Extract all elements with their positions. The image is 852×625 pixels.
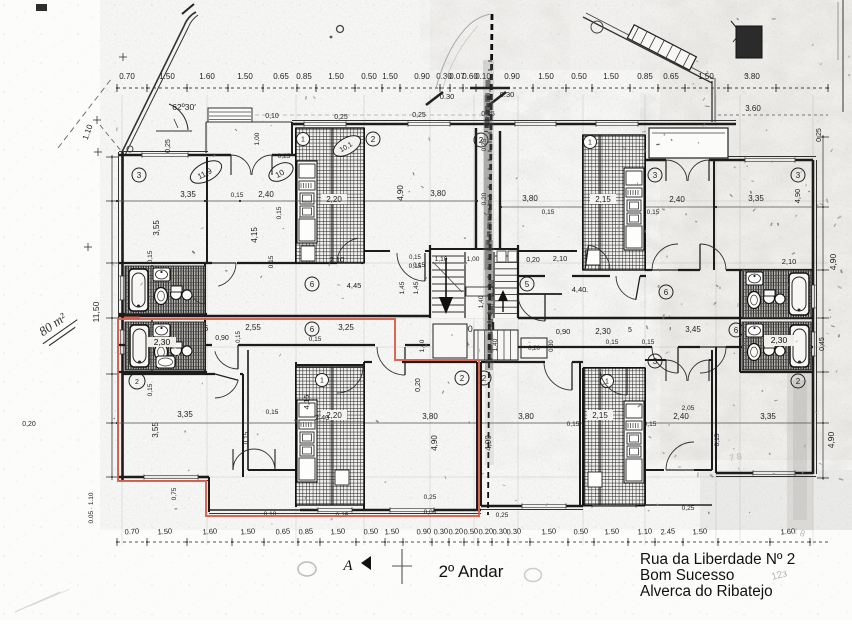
svg-text:2,30: 2,30 (771, 335, 788, 345)
svg-text:0,30: 0,30 (549, 340, 555, 352)
svg-text:0,20: 0,20 (22, 421, 36, 428)
svg-text:0,20: 0,20 (415, 378, 422, 392)
svg-text:1,45: 1,45 (399, 281, 406, 294)
svg-text:1.50: 1.50 (692, 527, 707, 537)
svg-text:1: 1 (320, 378, 324, 385)
svg-text:1.50: 1.50 (382, 72, 398, 81)
svg-text:3,80: 3,80 (522, 194, 538, 203)
svg-text:2º Andar: 2º Andar (439, 562, 504, 581)
svg-text:1.10: 1.10 (637, 527, 652, 537)
svg-text:0,25: 0,25 (682, 505, 695, 512)
svg-text:7 8: 7 8 (728, 451, 742, 463)
svg-text:0,20: 0,20 (526, 257, 540, 264)
svg-text:1.50: 1.50 (159, 72, 175, 81)
svg-text:0.85: 0.85 (296, 72, 312, 81)
svg-text:1.50: 1.50 (384, 527, 399, 537)
svg-text:4,40: 4,40 (572, 285, 587, 294)
svg-text:0.65: 0.65 (273, 72, 289, 81)
svg-text:1.50: 1.50 (604, 527, 619, 537)
svg-text:3,35: 3,35 (760, 412, 776, 421)
svg-text:2,55: 2,55 (245, 323, 261, 332)
svg-text:2,10: 2,10 (782, 257, 797, 266)
svg-text:1.50: 1.50 (328, 72, 344, 81)
svg-text:0,25: 0,25 (816, 128, 823, 142)
svg-text:0.30: 0.30 (500, 90, 515, 99)
svg-text:2: 2 (460, 374, 465, 383)
svg-text:11,50: 11,50 (91, 301, 101, 322)
svg-text:1: 1 (588, 140, 592, 147)
svg-text:0,15: 0,15 (606, 339, 619, 346)
svg-text:0,15: 0,15 (309, 336, 322, 343)
svg-text:4,45: 4,45 (347, 281, 362, 290)
svg-text:0.20: 0.20 (448, 527, 463, 537)
svg-text:6: 6 (310, 280, 315, 289)
svg-text:1,40: 1,40 (478, 295, 485, 308)
svg-text:0,25: 0,25 (278, 153, 291, 160)
svg-text:0,15: 0,15 (268, 255, 275, 268)
svg-text:0,15: 0,15 (642, 339, 655, 346)
svg-text:0,10: 0,10 (265, 113, 279, 120)
svg-text:Bom Sucesso: Bom Sucesso (640, 567, 734, 584)
svg-text:2: 2 (796, 377, 801, 386)
svg-text:0,45: 0,45 (819, 337, 826, 351)
svg-text:0.90: 0.90 (416, 527, 431, 537)
svg-text:0,15: 0,15 (236, 331, 242, 343)
svg-text:2: 2 (135, 379, 139, 386)
svg-text:2: 2 (371, 135, 376, 144)
svg-text:3: 3 (653, 357, 658, 366)
svg-text:0,15: 0,15 (542, 209, 555, 216)
svg-text:0.30: 0.30 (492, 527, 507, 537)
svg-text:0,05: 0,05 (424, 509, 437, 516)
svg-text:1.50: 1.50 (603, 72, 619, 81)
svg-text:2,20: 2,20 (326, 195, 342, 204)
svg-text:4,90: 4,90 (793, 189, 802, 204)
svg-text:3,55: 3,55 (151, 422, 160, 438)
svg-text:4,90: 4,90 (826, 431, 836, 448)
svg-text:0.70: 0.70 (124, 527, 139, 537)
svg-text:0.65: 0.65 (275, 527, 290, 537)
svg-text:1.50: 1.50 (538, 72, 554, 81)
svg-text:3,80: 3,80 (430, 189, 446, 198)
svg-text:0,15: 0,15 (276, 206, 283, 219)
svg-text:3,35: 3,35 (180, 190, 196, 199)
svg-text:3: 3 (137, 171, 142, 180)
svg-text:1.50: 1.50 (330, 527, 345, 537)
svg-text:0,25: 0,25 (496, 512, 509, 519)
svg-text:3: 3 (653, 171, 658, 180)
svg-text:A: A (342, 558, 353, 574)
svg-text:2.45: 2.45 (660, 527, 675, 537)
svg-text:0,15: 0,15 (409, 255, 421, 261)
svg-text:3,80: 3,80 (422, 412, 438, 421)
svg-text:0.50: 0.50 (573, 527, 588, 537)
svg-text:0.50: 0.50 (463, 527, 478, 537)
svg-text:3.80: 3.80 (744, 72, 760, 81)
svg-text:0,15: 0,15 (644, 421, 657, 428)
svg-text:3,35: 3,35 (177, 410, 193, 419)
svg-text:6: 6 (664, 288, 669, 297)
svg-text:1.50: 1.50 (240, 527, 255, 537)
svg-text:1,40: 1,40 (419, 339, 426, 352)
svg-text:2,05: 2,05 (682, 405, 695, 412)
svg-text:1,45: 1,45 (413, 281, 420, 294)
svg-text:0,15: 0,15 (567, 421, 580, 428)
svg-text:2,15: 2,15 (592, 411, 608, 420)
svg-text:1.50: 1.50 (157, 527, 172, 537)
svg-text:0.85: 0.85 (298, 527, 313, 537)
svg-text:1.50: 1.50 (237, 72, 253, 81)
svg-text:Rua da Liberdade Nº 2: Rua da Liberdade Nº 2 (640, 551, 795, 568)
svg-text:0.70: 0.70 (119, 72, 135, 81)
svg-text:4,15: 4,15 (302, 395, 311, 410)
svg-text:2,10: 2,10 (553, 254, 568, 263)
svg-text:0.30: 0.30 (506, 527, 521, 537)
svg-text:0.50: 0.50 (571, 72, 587, 81)
svg-text:0,75: 0,75 (171, 487, 178, 500)
svg-text:1,40: 1,40 (492, 338, 499, 351)
svg-text:0,15: 0,15 (647, 209, 660, 216)
svg-text:0,15: 0,15 (243, 431, 250, 444)
svg-text:62º30′: 62º30′ (172, 102, 196, 112)
svg-text:1,70: 1,70 (174, 343, 181, 356)
svg-text:0.05 · 1.10: 0.05 · 1.10 (88, 492, 95, 523)
svg-text:2,40: 2,40 (315, 413, 330, 422)
svg-text:0,90: 0,90 (215, 335, 229, 342)
svg-text:0.90: 0.90 (504, 72, 520, 81)
svg-text:0.30: 0.30 (433, 527, 448, 537)
svg-text:0.90: 0.90 (414, 72, 430, 81)
svg-text:2,10: 2,10 (330, 255, 345, 264)
svg-text:1.60: 1.60 (202, 527, 217, 537)
svg-text:0,25: 0,25 (334, 114, 348, 121)
svg-text:3,80: 3,80 (518, 412, 534, 421)
svg-text:5,10: 5,10 (490, 304, 496, 316)
svg-text:1.50: 1.50 (698, 72, 714, 81)
svg-text:2,30: 2,30 (595, 327, 611, 336)
svg-text:0,25: 0,25 (424, 494, 437, 501)
svg-text:2,30: 2,30 (154, 337, 171, 347)
svg-text:3: 3 (796, 171, 801, 180)
svg-text:3.60: 3.60 (745, 104, 761, 113)
svg-text:5: 5 (628, 327, 632, 334)
svg-text:3,55: 3,55 (152, 220, 161, 236)
svg-text:0.65: 0.65 (663, 72, 679, 81)
svg-text:4,15: 4,15 (250, 227, 259, 243)
svg-text:0.30: 0.30 (440, 92, 455, 101)
svg-text:0,15: 0,15 (714, 433, 721, 446)
svg-text:0,15: 0,15 (413, 263, 425, 269)
svg-text:3,25: 3,25 (338, 323, 354, 332)
svg-text:0,15: 0,15 (231, 192, 244, 199)
svg-text:0,25: 0,25 (165, 139, 172, 153)
svg-text:0,25: 0,25 (412, 112, 426, 119)
svg-text:6: 6 (310, 325, 315, 334)
svg-text:1.60: 1.60 (199, 72, 215, 81)
svg-text:4,90: 4,90 (828, 253, 838, 270)
svg-text:2,40: 2,40 (669, 195, 685, 204)
svg-text:0.20: 0.20 (478, 527, 493, 537)
svg-text:3,35: 3,35 (748, 194, 764, 203)
svg-text:2,15: 2,15 (595, 195, 611, 204)
svg-text:2,40: 2,40 (673, 412, 689, 421)
svg-text:Alverca do Ribatejo: Alverca do Ribatejo (640, 583, 773, 600)
svg-text:2,40: 2,40 (258, 190, 274, 199)
svg-text:1: 1 (301, 137, 305, 144)
svg-text:0,15: 0,15 (147, 250, 154, 263)
svg-text:0,90: 0,90 (556, 327, 571, 336)
svg-text:1,00: 1,00 (254, 132, 261, 145)
svg-text:4,90: 4,90 (396, 185, 405, 201)
svg-text:6: 6 (734, 326, 739, 335)
svg-text:0.50: 0.50 (361, 72, 377, 81)
svg-text:5: 5 (525, 280, 530, 289)
svg-text:1,10: 1,10 (435, 256, 448, 263)
svg-text:0.85: 0.85 (637, 72, 653, 81)
svg-text:4,90: 4,90 (430, 435, 439, 451)
svg-text:1,00: 1,00 (467, 256, 480, 263)
svg-text:1.50: 1.50 (541, 527, 556, 537)
svg-text:3,45: 3,45 (685, 325, 701, 334)
svg-text:0,15: 0,15 (147, 383, 154, 396)
svg-text:0.50: 0.50 (363, 527, 378, 537)
